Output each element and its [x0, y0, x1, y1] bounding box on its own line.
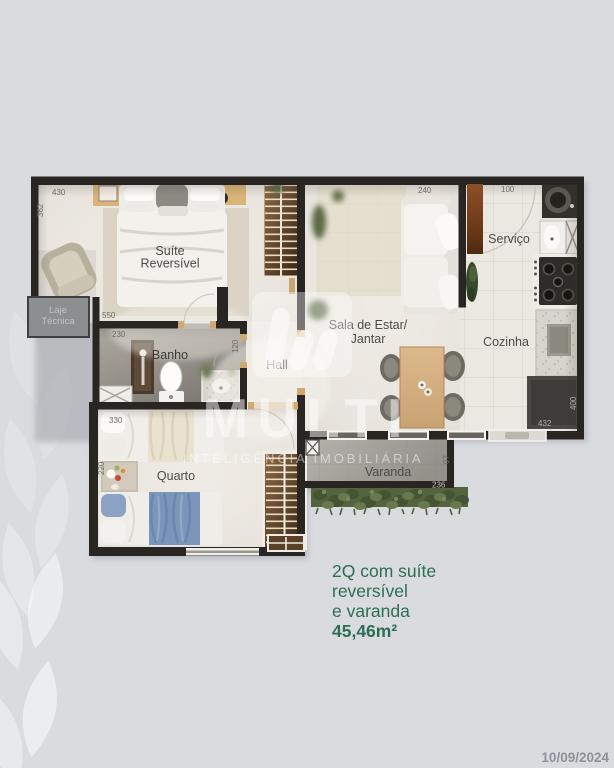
svg-text:MULTI: MULTI — [203, 387, 412, 449]
svg-text:e varanda: e varanda — [332, 601, 410, 621]
svg-text:Técnica: Técnica — [41, 316, 75, 327]
svg-text:432: 432 — [538, 419, 552, 428]
svg-text:Banho: Banho — [152, 348, 188, 362]
svg-text:230: 230 — [112, 330, 126, 339]
svg-text:330: 330 — [109, 416, 123, 425]
svg-text:430: 430 — [52, 188, 66, 197]
svg-text:Cozinha: Cozinha — [483, 335, 529, 349]
svg-text:Quarto: Quarto — [157, 469, 195, 483]
svg-text:INTELIGÊNCIA IMOBILIÁRIA: INTELIGÊNCIA IMOBILIÁRIA — [183, 451, 424, 466]
svg-text:Jantar: Jantar — [351, 332, 386, 346]
svg-text:550: 550 — [102, 311, 116, 320]
svg-text:362: 362 — [36, 203, 45, 217]
svg-text:220: 220 — [97, 461, 106, 475]
svg-text:400: 400 — [569, 396, 578, 410]
svg-text:Varanda: Varanda — [365, 465, 411, 479]
svg-text:10/09/2024: 10/09/2024 — [541, 750, 609, 765]
svg-text:240: 240 — [418, 186, 432, 195]
svg-text:45,46m²: 45,46m² — [332, 621, 397, 641]
svg-text:reversível: reversível — [332, 581, 408, 601]
svg-text:07: 07 — [442, 455, 451, 464]
svg-text:Reversível: Reversível — [140, 257, 199, 271]
svg-text:Serviço: Serviço — [488, 232, 530, 246]
svg-text:100: 100 — [501, 185, 515, 194]
svg-text:Laje: Laje — [49, 305, 67, 316]
svg-text:2Q com suíte: 2Q com suíte — [332, 561, 436, 581]
svg-text:236: 236 — [432, 481, 446, 490]
svg-text:120: 120 — [231, 339, 240, 353]
